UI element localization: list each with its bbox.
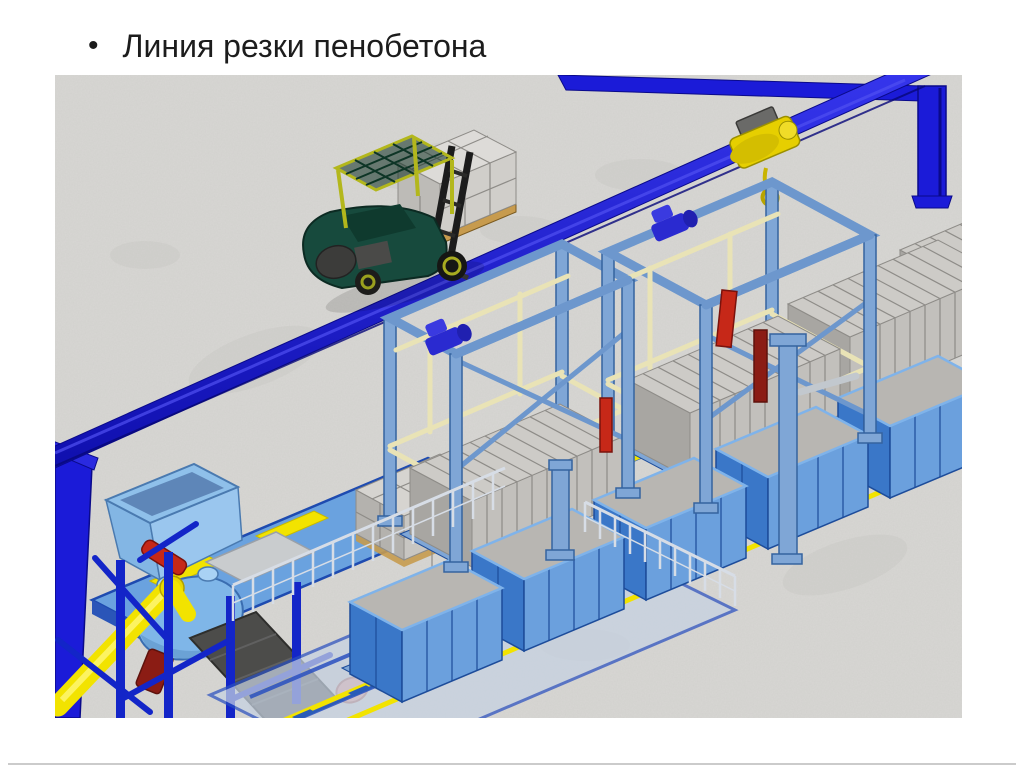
crane-column-right [912, 86, 952, 208]
gantry-2-darkred-bar [754, 330, 767, 402]
production-line-3d-render [55, 75, 962, 718]
gantry-1-red-bar [600, 398, 612, 452]
slide-title-row: • Линия резки пенобетона [88, 26, 486, 66]
presentation-slide: • Линия резки пенобетона [0, 0, 1024, 767]
bullet-icon: • [88, 26, 99, 66]
slide-title: Линия резки пенобетона [123, 26, 487, 66]
slide-footer-line [8, 763, 1016, 765]
